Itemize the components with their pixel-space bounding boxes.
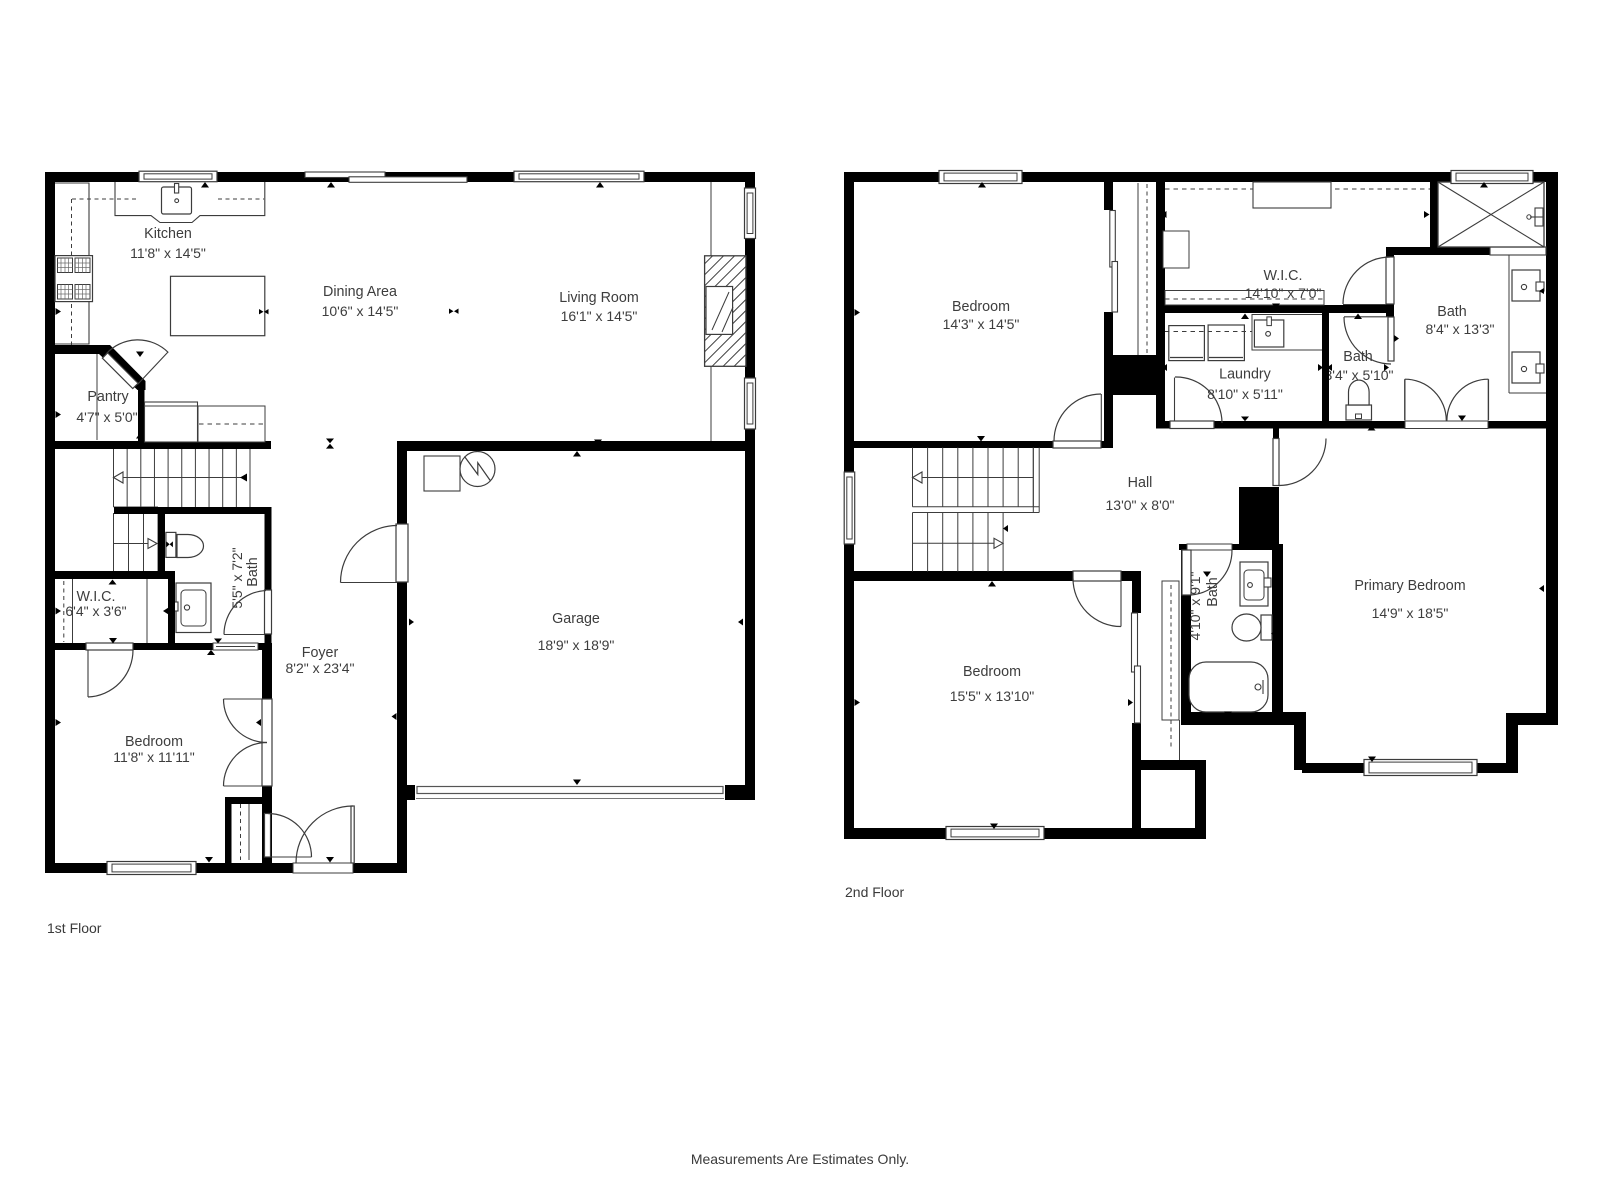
svg-text:Kitchen: Kitchen: [144, 226, 192, 242]
svg-text:8'2" x 23'4": 8'2" x 23'4": [286, 660, 355, 676]
svg-text:16'1" x 14'5": 16'1" x 14'5": [561, 308, 638, 324]
svg-text:6'4" x 3'6": 6'4" x 3'6": [65, 603, 126, 619]
svg-text:18'9" x 18'9": 18'9" x 18'9": [538, 637, 615, 653]
svg-text:8'4" x 13'3": 8'4" x 13'3": [1426, 321, 1495, 337]
svg-text:Foyer: Foyer: [302, 645, 339, 661]
svg-text:Dining Area: Dining Area: [323, 284, 397, 300]
svg-text:14'9" x 18'5": 14'9" x 18'5": [1372, 605, 1449, 621]
svg-text:Hall: Hall: [1128, 475, 1153, 491]
svg-text:Bedroom: Bedroom: [952, 299, 1010, 315]
svg-text:Bath: Bath: [245, 557, 261, 586]
svg-text:Laundry: Laundry: [1219, 367, 1272, 383]
svg-text:Living Room: Living Room: [559, 290, 638, 306]
svg-text:Garage: Garage: [552, 611, 600, 627]
svg-text:Measurements Are Estimates Onl: Measurements Are Estimates Only.: [691, 1151, 909, 1167]
svg-text:14'3" x 14'5": 14'3" x 14'5": [943, 316, 1020, 332]
svg-text:Bath: Bath: [1205, 577, 1221, 606]
svg-text:Bedroom: Bedroom: [963, 664, 1021, 680]
svg-text:4'7" x 5'0": 4'7" x 5'0": [76, 409, 137, 425]
svg-text:14'10" x 7'0": 14'10" x 7'0": [1245, 285, 1322, 301]
svg-text:W.I.C.: W.I.C.: [1264, 268, 1303, 284]
svg-text:Primary Bedroom: Primary Bedroom: [1354, 578, 1465, 594]
svg-text:1st Floor: 1st Floor: [47, 920, 102, 936]
svg-text:2nd Floor: 2nd Floor: [845, 884, 904, 900]
svg-text:5'5" x 7'2": 5'5" x 7'2": [229, 547, 245, 608]
svg-text:Pantry: Pantry: [87, 389, 129, 405]
svg-text:11'8" x 14'5": 11'8" x 14'5": [130, 245, 206, 261]
svg-text:3'4" x 5'10": 3'4" x 5'10": [1325, 367, 1394, 383]
svg-text:8'10" x 5'11": 8'10" x 5'11": [1207, 386, 1283, 402]
svg-text:Bath: Bath: [1437, 304, 1466, 320]
svg-text:13'0" x 8'0": 13'0" x 8'0": [1106, 497, 1175, 513]
svg-text:Bedroom: Bedroom: [125, 734, 183, 750]
svg-text:4'10" x 9'1": 4'10" x 9'1": [1187, 571, 1203, 640]
svg-text:15'5" x 13'10": 15'5" x 13'10": [950, 688, 1035, 704]
svg-text:11'8" x 11'11": 11'8" x 11'11": [113, 749, 194, 765]
svg-text:Bath: Bath: [1343, 349, 1372, 365]
svg-text:10'6" x 14'5": 10'6" x 14'5": [322, 303, 399, 319]
